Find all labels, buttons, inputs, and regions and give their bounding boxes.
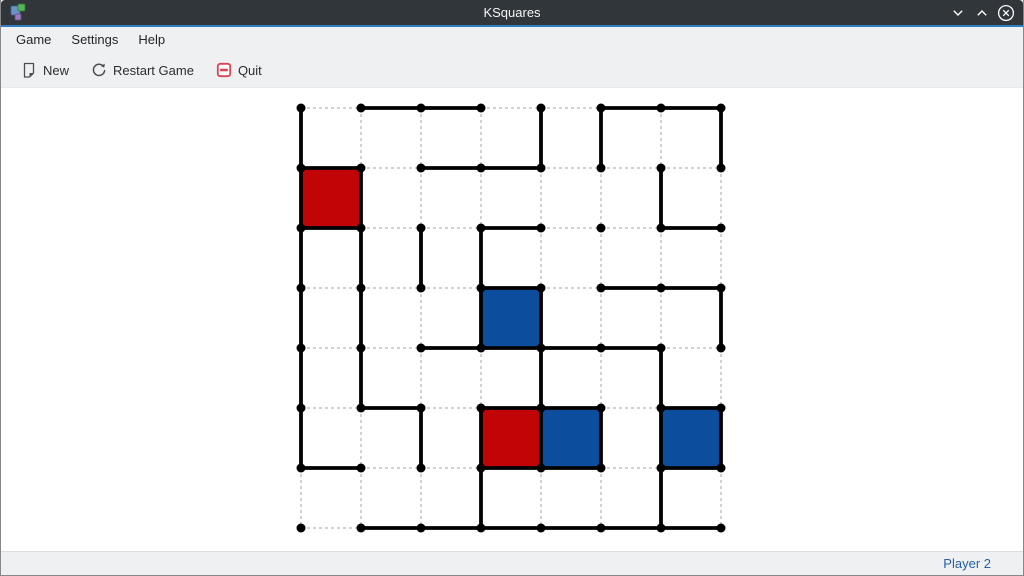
dot bbox=[657, 524, 666, 533]
maximize-button[interactable] bbox=[973, 4, 991, 22]
dot bbox=[597, 164, 606, 173]
titlebar[interactable]: KSquares bbox=[1, 0, 1023, 25]
filled-square bbox=[301, 168, 361, 228]
dot bbox=[477, 104, 486, 113]
dot bbox=[597, 284, 606, 293]
restart-game-button[interactable]: Restart Game bbox=[83, 58, 202, 82]
game-canvas bbox=[1, 88, 1023, 551]
dot bbox=[537, 224, 546, 233]
menu-help[interactable]: Help bbox=[128, 27, 175, 53]
game-board[interactable] bbox=[1, 88, 1024, 551]
dot bbox=[717, 524, 726, 533]
dot bbox=[417, 164, 426, 173]
dot bbox=[597, 524, 606, 533]
statusbar: Player 2 bbox=[1, 551, 1023, 576]
dot bbox=[717, 104, 726, 113]
dot bbox=[537, 524, 546, 533]
dot bbox=[597, 464, 606, 473]
window-title: KSquares bbox=[1, 5, 1023, 20]
dot bbox=[657, 284, 666, 293]
filled-square bbox=[661, 408, 721, 468]
menu-game[interactable]: Game bbox=[6, 27, 61, 53]
dot bbox=[717, 224, 726, 233]
dot bbox=[597, 104, 606, 113]
dot bbox=[597, 344, 606, 353]
dot bbox=[537, 464, 546, 473]
dot bbox=[477, 464, 486, 473]
dot bbox=[357, 524, 366, 533]
filled-square bbox=[541, 408, 601, 468]
dot bbox=[477, 164, 486, 173]
dot bbox=[537, 104, 546, 113]
dot bbox=[717, 464, 726, 473]
new-document-icon bbox=[21, 62, 37, 78]
dot bbox=[657, 104, 666, 113]
dot bbox=[717, 404, 726, 413]
dot bbox=[657, 224, 666, 233]
dot bbox=[357, 344, 366, 353]
minimize-button[interactable] bbox=[949, 4, 967, 22]
dot bbox=[477, 284, 486, 293]
dot bbox=[717, 344, 726, 353]
new-button[interactable]: New bbox=[13, 58, 77, 82]
current-player-label: Player 2 bbox=[943, 552, 991, 576]
ksquares-window: KSquares bbox=[0, 0, 1024, 576]
restart-button-label: Restart Game bbox=[113, 63, 194, 78]
dot bbox=[717, 164, 726, 173]
dot bbox=[417, 464, 426, 473]
menu-settings[interactable]: Settings bbox=[61, 27, 128, 53]
dot bbox=[597, 224, 606, 233]
dot bbox=[477, 224, 486, 233]
dot bbox=[717, 284, 726, 293]
dot bbox=[477, 524, 486, 533]
dot bbox=[357, 404, 366, 413]
dot bbox=[297, 284, 306, 293]
dot bbox=[657, 464, 666, 473]
dot bbox=[297, 104, 306, 113]
dot bbox=[417, 524, 426, 533]
quit-button-label: Quit bbox=[238, 63, 262, 78]
dot bbox=[297, 224, 306, 233]
ksquares-app-icon bbox=[8, 3, 26, 21]
quit-icon bbox=[216, 62, 232, 78]
dot bbox=[357, 284, 366, 293]
menubar: Game Settings Help bbox=[1, 27, 1023, 53]
dot bbox=[537, 284, 546, 293]
dot bbox=[297, 464, 306, 473]
dot bbox=[417, 404, 426, 413]
dot bbox=[417, 224, 426, 233]
dot bbox=[657, 404, 666, 413]
filled-square bbox=[481, 288, 541, 348]
close-icon bbox=[997, 4, 1015, 22]
dot bbox=[297, 404, 306, 413]
dot bbox=[477, 344, 486, 353]
dot bbox=[657, 344, 666, 353]
dot bbox=[657, 164, 666, 173]
chevron-up-icon bbox=[977, 10, 987, 16]
dot bbox=[297, 344, 306, 353]
dot bbox=[597, 404, 606, 413]
dot bbox=[297, 164, 306, 173]
toolbar: New Restart Game Quit bbox=[1, 53, 1023, 88]
new-button-label: New bbox=[43, 63, 69, 78]
chevron-down-icon bbox=[953, 10, 963, 16]
quit-button[interactable]: Quit bbox=[208, 58, 270, 82]
dot bbox=[357, 164, 366, 173]
restart-icon bbox=[91, 62, 107, 78]
filled-square bbox=[481, 408, 541, 468]
dot bbox=[537, 344, 546, 353]
close-button[interactable] bbox=[997, 4, 1015, 22]
dot bbox=[357, 464, 366, 473]
dot bbox=[537, 164, 546, 173]
dot bbox=[297, 524, 306, 533]
dot bbox=[477, 404, 486, 413]
dot bbox=[357, 224, 366, 233]
dot bbox=[417, 344, 426, 353]
dot bbox=[357, 104, 366, 113]
dot bbox=[417, 104, 426, 113]
dot bbox=[417, 284, 426, 293]
dot bbox=[537, 404, 546, 413]
